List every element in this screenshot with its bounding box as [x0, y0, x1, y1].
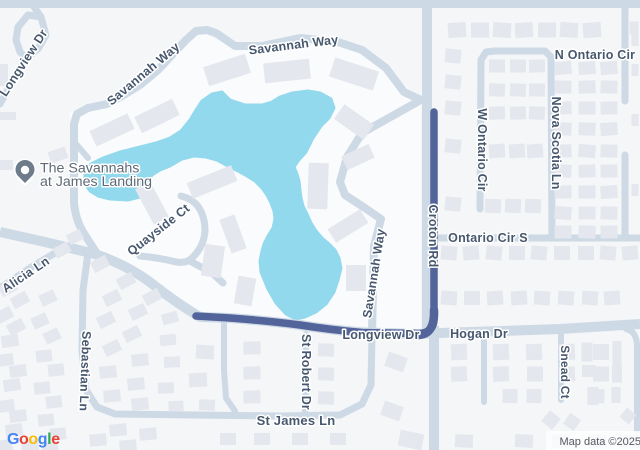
svg-text:Google: Google — [7, 431, 60, 448]
svg-text:Ontario Cir S: Ontario Cir S — [448, 231, 528, 245]
svg-text:at James Landing: at James Landing — [40, 174, 152, 190]
svg-text:Snead Ct: Snead Ct — [558, 345, 572, 399]
svg-text:Longview Dr: Longview Dr — [342, 328, 419, 342]
svg-text:N Ontario Cir: N Ontario Cir — [555, 48, 635, 62]
svg-text:St Robert Dr: St Robert Dr — [299, 334, 313, 410]
svg-text:St James Ln: St James Ln — [257, 413, 336, 428]
svg-text:Nova Scotia Ln: Nova Scotia Ln — [549, 96, 563, 189]
svg-text:Sebastian Ln: Sebastian Ln — [77, 331, 94, 412]
svg-text:Croton Rd: Croton Rd — [426, 205, 440, 268]
svg-text:Hogan Dr: Hogan Dr — [450, 327, 508, 341]
svg-text:Map data ©2025: Map data ©2025 — [560, 436, 640, 448]
svg-text:W Ontario Cir: W Ontario Cir — [475, 108, 489, 191]
